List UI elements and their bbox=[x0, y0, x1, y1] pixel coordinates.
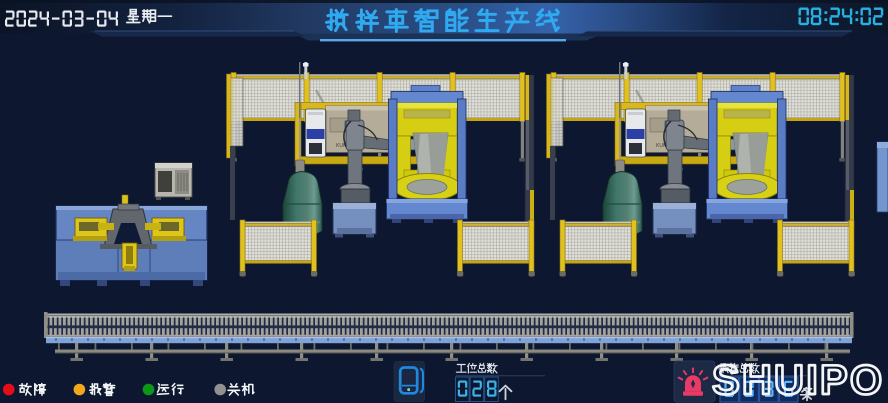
svg-text:SHUIPO: SHUIPO bbox=[712, 356, 884, 403]
